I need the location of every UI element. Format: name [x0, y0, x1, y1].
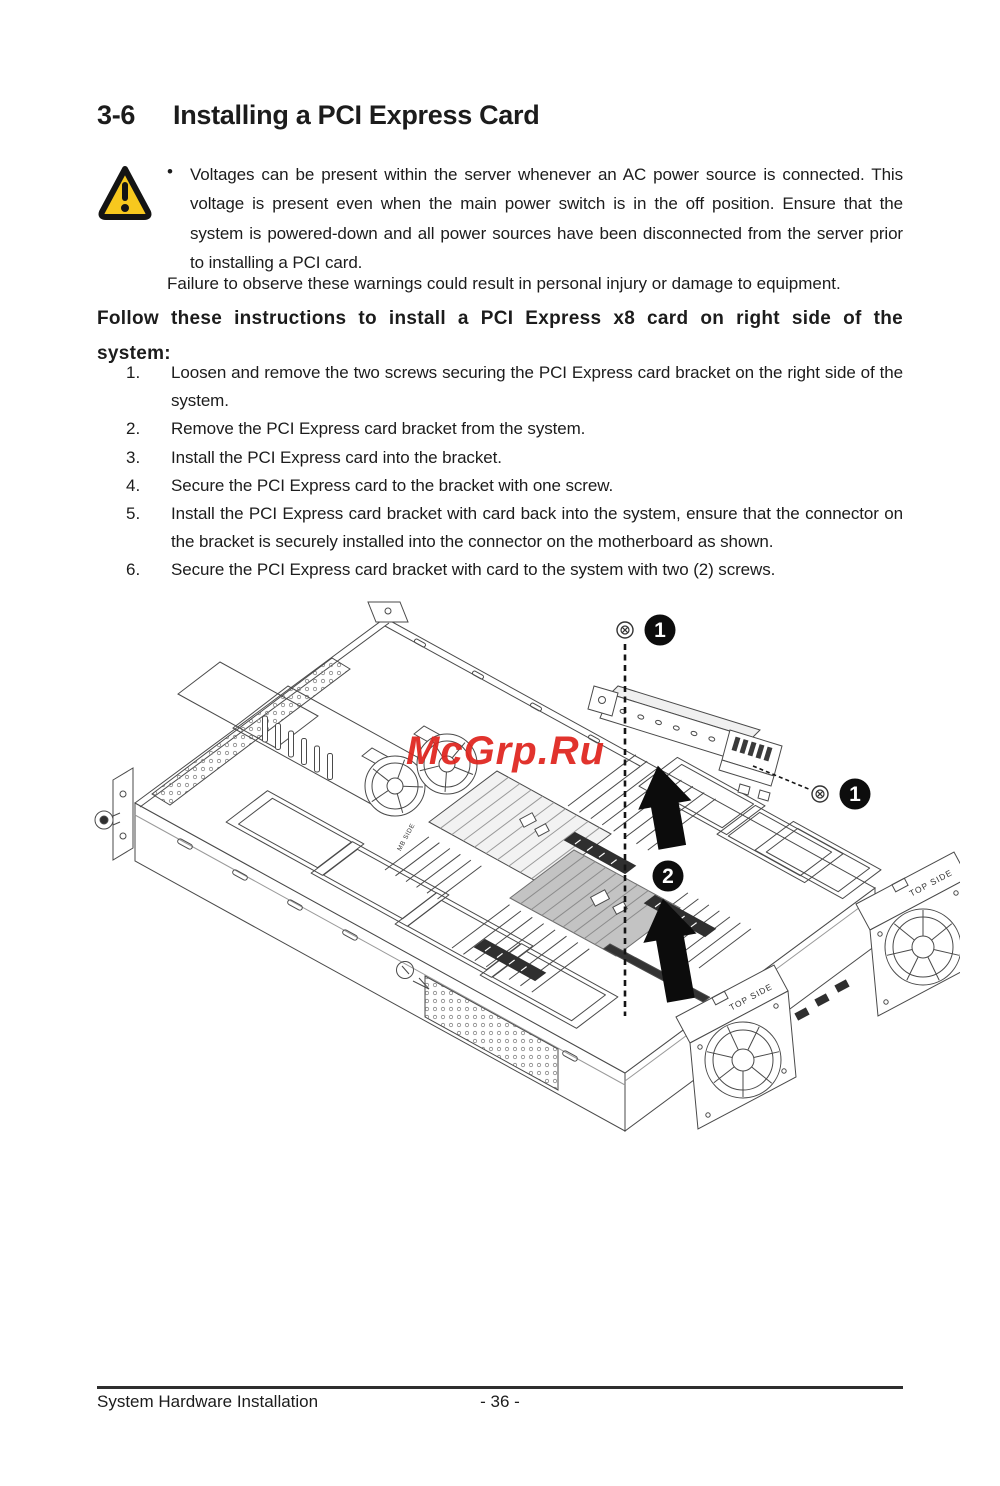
manual-page: 3-6Installing a PCI Express Card • Volta… [0, 0, 1000, 1486]
watermark: McGrp.Ru [406, 729, 605, 773]
section-title: Installing a PCI Express Card [173, 100, 539, 130]
bullet: • [167, 162, 173, 182]
callout-badge-1a: 1 [645, 615, 676, 646]
page-number: - 36 - [0, 1392, 1000, 1412]
section-number: 3-6 [97, 100, 173, 131]
svg-text:2: 2 [662, 865, 674, 888]
warning-text: Voltages can be present within the serve… [190, 160, 903, 278]
callout-badge-1b: 1 [840, 779, 871, 810]
svg-text:1: 1 [849, 783, 861, 806]
rear-tab [368, 602, 408, 622]
step-2: 2.Remove the PCI Express card bracket fr… [126, 415, 903, 443]
footer-rule [97, 1386, 903, 1389]
step-3: 3.Install the PCI Express card into the … [126, 444, 903, 472]
svg-text:1: 1 [654, 619, 666, 642]
server-illustration: TOP SIDE TOP SIDE [80, 598, 960, 1148]
warning-triangle-icon [98, 165, 152, 221]
screw-icon-side [812, 786, 828, 802]
warning-note: Failure to observe these warnings could … [167, 274, 841, 294]
page-title: 3-6Installing a PCI Express Card [97, 100, 539, 131]
screw-icon-top [617, 622, 633, 638]
step-5: 5.Install the PCI Express card bracket w… [126, 500, 903, 556]
step-6: 6.Secure the PCI Express card bracket wi… [126, 556, 903, 584]
front-flange [113, 768, 133, 860]
step-1: 1.Loosen and remove the two screws secur… [126, 359, 903, 415]
chassis: TOP SIDE TOP SIDE [95, 602, 960, 1131]
step-4: 4.Secure the PCI Express card to the bra… [126, 472, 903, 500]
instruction-steps: 1.Loosen and remove the two screws secur… [126, 359, 903, 585]
callout-badge-2: 2 [653, 861, 684, 892]
